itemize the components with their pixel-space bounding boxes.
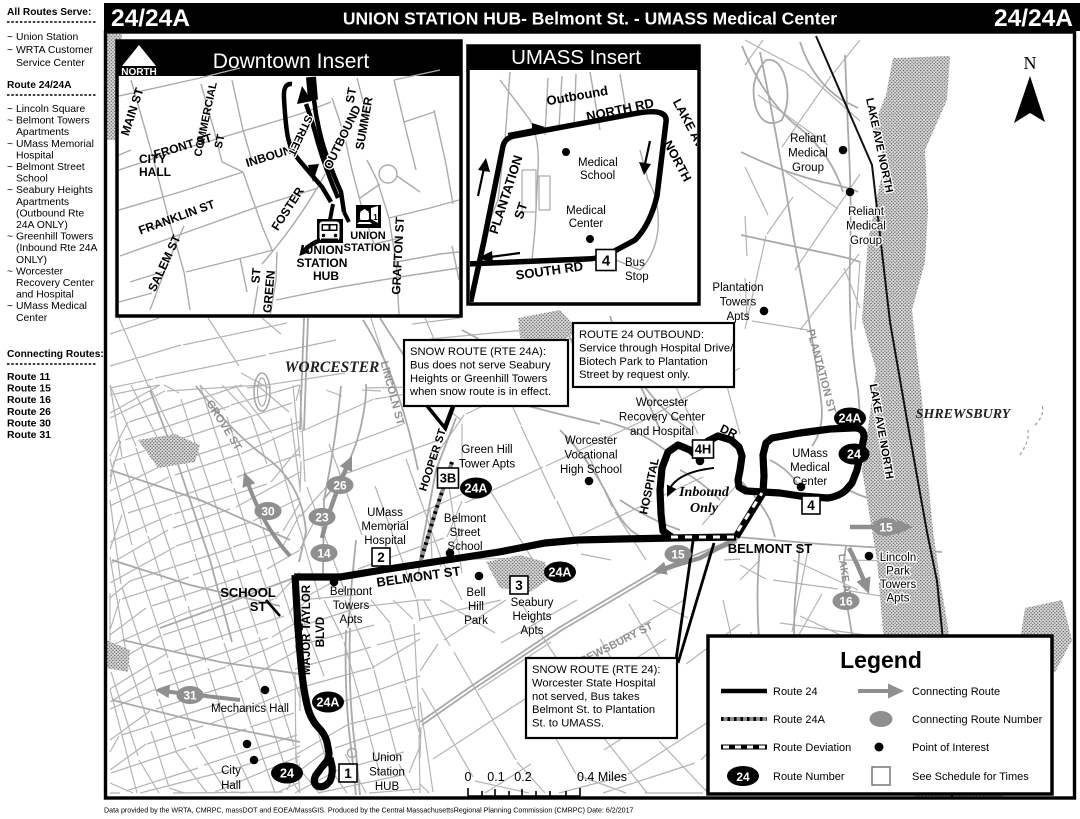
svg-text:0.1: 0.1 bbox=[487, 770, 504, 784]
svg-text:HUB: HUB bbox=[375, 781, 400, 793]
svg-text:Point of Interest: Point of Interest bbox=[912, 742, 989, 754]
svg-text:Hospital: Hospital bbox=[16, 150, 54, 161]
svg-text:School: School bbox=[580, 170, 615, 182]
svg-text:and Hospital: and Hospital bbox=[16, 290, 74, 301]
svg-text:Medical: Medical bbox=[578, 157, 618, 169]
svg-text:Route Number: Route Number bbox=[773, 771, 845, 783]
svg-text:Station: Station bbox=[369, 767, 405, 779]
svg-text:Tower Apts: Tower Apts bbox=[459, 459, 515, 471]
svg-text:STATION: STATION bbox=[344, 242, 391, 254]
svg-text:24A: 24A bbox=[839, 412, 862, 426]
svg-text:~ Belmont Towers: ~ Belmont Towers bbox=[7, 116, 90, 127]
svg-text:SNOW ROUTE (RTE 24):: SNOW ROUTE (RTE 24): bbox=[532, 664, 660, 676]
svg-text:UMASS Insert: UMASS Insert bbox=[511, 46, 641, 69]
svg-text:not served, Bus takes: not served, Bus takes bbox=[532, 691, 640, 703]
svg-text:1: 1 bbox=[344, 766, 352, 781]
svg-text:Route 15: Route 15 bbox=[7, 384, 51, 395]
svg-text:All Routes Serve:: All Routes Serve: bbox=[7, 7, 91, 18]
svg-text:Biotech Park to Plantation: Biotech Park to Plantation bbox=[579, 356, 708, 368]
svg-text:Apts: Apts bbox=[886, 593, 909, 605]
svg-text:Union: Union bbox=[372, 752, 402, 764]
svg-text:23: 23 bbox=[315, 510, 329, 524]
svg-text:Recovery Center: Recovery Center bbox=[16, 278, 95, 289]
svg-text:UNION STATION HUB- Belmont St.: UNION STATION HUB- Belmont St. - UMASS M… bbox=[343, 9, 837, 29]
svg-text:ST: ST bbox=[248, 267, 263, 284]
svg-text:Group: Group bbox=[792, 162, 824, 174]
svg-text:Medical: Medical bbox=[846, 221, 886, 233]
svg-text:~ Worcester: ~ Worcester bbox=[7, 266, 64, 277]
svg-text:HUB: HUB bbox=[313, 269, 339, 283]
svg-text:NORTH: NORTH bbox=[121, 67, 157, 78]
svg-text:~ Greenhill Towers: ~ Greenhill Towers bbox=[7, 232, 93, 243]
svg-text:3B: 3B bbox=[440, 471, 457, 486]
svg-text:WORCESTER: WORCESTER bbox=[285, 359, 380, 376]
svg-text:Worcester State Hospital: Worcester State Hospital bbox=[532, 677, 656, 689]
svg-text:Apts: Apts bbox=[726, 311, 749, 323]
svg-text:Street: Street bbox=[450, 527, 481, 539]
svg-text:HALL: HALL bbox=[139, 165, 171, 179]
svg-text:~ WRTA Customer: ~ WRTA Customer bbox=[7, 45, 93, 56]
svg-text:Route 26: Route 26 bbox=[7, 407, 51, 418]
svg-text:when snow route is in effect.: when snow route is in effect. bbox=[409, 386, 551, 398]
svg-text:ST: ST bbox=[343, 86, 360, 104]
svg-text:Towers: Towers bbox=[880, 579, 917, 591]
svg-text:Center: Center bbox=[569, 218, 604, 230]
svg-text:UMass: UMass bbox=[792, 448, 828, 460]
svg-text:Route 16: Route 16 bbox=[7, 395, 51, 406]
svg-text:Bus does not serve Seabury: Bus does not serve Seabury bbox=[410, 359, 551, 371]
svg-text:Belmont: Belmont bbox=[444, 513, 487, 525]
svg-text:ST: ST bbox=[250, 599, 267, 614]
svg-text:UMass: UMass bbox=[367, 507, 403, 519]
svg-text:24: 24 bbox=[847, 448, 861, 462]
svg-text:ROUTE 24 OUTBOUND:: ROUTE 24 OUTBOUND: bbox=[579, 329, 704, 341]
svg-text:Medical: Medical bbox=[790, 462, 830, 474]
svg-text:24A: 24A bbox=[549, 566, 572, 580]
svg-text:High School: High School bbox=[560, 464, 622, 476]
svg-text:SHREWSBURY: SHREWSBURY bbox=[916, 407, 1012, 422]
svg-text:Connecting Routes:: Connecting Routes: bbox=[7, 349, 104, 360]
svg-text:UNION: UNION bbox=[305, 243, 344, 257]
svg-text:Heights: Heights bbox=[513, 611, 552, 623]
svg-text:School: School bbox=[16, 174, 48, 185]
svg-text:Medical: Medical bbox=[566, 205, 606, 217]
svg-text:(Inbound Rte 24A: (Inbound Rte 24A bbox=[16, 243, 98, 254]
svg-text:24: 24 bbox=[736, 770, 750, 784]
svg-text:City: City bbox=[221, 765, 241, 777]
svg-text:Stop: Stop bbox=[625, 271, 649, 283]
svg-text:St. to UMASS.: St. to UMASS. bbox=[532, 718, 604, 730]
svg-text:Vocational: Vocational bbox=[564, 450, 617, 462]
svg-text:Hall: Hall bbox=[221, 780, 241, 792]
svg-text:Memorial: Memorial bbox=[361, 521, 408, 533]
svg-text:16: 16 bbox=[839, 594, 853, 608]
svg-text:Connecting Route Number: Connecting Route Number bbox=[912, 714, 1043, 726]
svg-text:MAJOR TAYLOR: MAJOR TAYLOR bbox=[301, 584, 313, 675]
svg-text:STATION: STATION bbox=[297, 256, 348, 270]
svg-text:Green Hill: Green Hill bbox=[461, 444, 512, 456]
svg-text:4: 4 bbox=[807, 498, 815, 513]
svg-text:SNOW ROUTE (RTE 24A):: SNOW ROUTE (RTE 24A): bbox=[410, 346, 546, 358]
svg-text:(Outbound Rte: (Outbound Rte bbox=[16, 208, 84, 219]
svg-text:Park: Park bbox=[464, 615, 488, 627]
svg-text:4H: 4H bbox=[695, 442, 712, 457]
svg-text:Park: Park bbox=[886, 566, 910, 578]
svg-text:26: 26 bbox=[333, 478, 347, 492]
svg-text:15: 15 bbox=[671, 547, 685, 561]
svg-text:Apartments: Apartments bbox=[16, 197, 69, 208]
svg-text:1: 1 bbox=[373, 213, 378, 222]
svg-text:~ Union Station: ~ Union Station bbox=[7, 32, 79, 43]
svg-text:UNION: UNION bbox=[350, 230, 386, 242]
svg-text:Towers: Towers bbox=[333, 600, 370, 612]
svg-text:24A: 24A bbox=[465, 482, 488, 496]
svg-text:Seabury: Seabury bbox=[511, 597, 554, 609]
svg-text:Route 11: Route 11 bbox=[7, 372, 51, 383]
svg-text:2: 2 bbox=[377, 550, 385, 565]
svg-text:Connecting Route: Connecting Route bbox=[912, 686, 1000, 698]
svg-text:Mechanics Hall: Mechanics Hall bbox=[211, 703, 289, 715]
svg-text:~ UMass Medical: ~ UMass Medical bbox=[7, 301, 87, 312]
svg-text:Only: Only bbox=[690, 501, 719, 516]
svg-text:Route 30: Route 30 bbox=[7, 418, 51, 429]
svg-text:31: 31 bbox=[183, 688, 197, 702]
svg-text:Apts: Apts bbox=[520, 625, 543, 637]
svg-text:Belmont: Belmont bbox=[330, 586, 373, 598]
svg-text:Reliant: Reliant bbox=[848, 206, 885, 218]
svg-text:Center: Center bbox=[16, 313, 48, 324]
svg-text:Bell: Bell bbox=[466, 587, 485, 599]
svg-text:14: 14 bbox=[317, 546, 331, 560]
svg-text:Apts: Apts bbox=[339, 614, 362, 626]
svg-text:SCHOOL: SCHOOL bbox=[220, 585, 276, 600]
svg-text:Plantation: Plantation bbox=[712, 282, 763, 294]
svg-text:Route 24A: Route 24A bbox=[773, 714, 826, 726]
svg-text:Lincoln: Lincoln bbox=[880, 552, 916, 564]
svg-text:Heights or Greenhill Towers: Heights or Greenhill Towers bbox=[410, 373, 548, 385]
svg-text:Recovery Center: Recovery Center bbox=[619, 412, 705, 424]
svg-text:4: 4 bbox=[602, 252, 611, 269]
svg-text:Worcester: Worcester bbox=[565, 435, 617, 447]
svg-text:Service Center: Service Center bbox=[16, 58, 85, 69]
svg-text:Belmont St. to Plantation: Belmont St. to Plantation bbox=[532, 704, 655, 716]
svg-text:Inbound: Inbound bbox=[678, 485, 730, 500]
svg-text:Towers: Towers bbox=[720, 297, 757, 309]
svg-text:0: 0 bbox=[465, 770, 472, 784]
svg-text:N: N bbox=[1024, 53, 1037, 73]
svg-text:Hospital: Hospital bbox=[364, 535, 406, 547]
svg-text:~ UMass Memorial: ~ UMass Memorial bbox=[7, 139, 94, 150]
svg-text:Route 24/24A: Route 24/24A bbox=[7, 80, 72, 91]
svg-text:ONLY): ONLY) bbox=[16, 255, 47, 266]
svg-text:and Hospital: and Hospital bbox=[630, 426, 694, 438]
svg-text:Apartments: Apartments bbox=[16, 127, 69, 138]
svg-text:24A ONLY): 24A ONLY) bbox=[16, 220, 68, 231]
svg-text:3: 3 bbox=[515, 578, 523, 593]
svg-text:Worcester: Worcester bbox=[636, 397, 688, 409]
svg-text:30: 30 bbox=[261, 504, 275, 518]
svg-text:Medical: Medical bbox=[788, 148, 828, 160]
svg-text:Reliant: Reliant bbox=[790, 133, 827, 145]
svg-text:Street by request only.: Street by request only. bbox=[579, 369, 690, 381]
svg-text:CITY: CITY bbox=[139, 152, 166, 166]
svg-text:15: 15 bbox=[879, 520, 893, 534]
svg-text:Data provided by the WRTA, CMR: Data provided by the WRTA, CMRPC, massDO… bbox=[104, 807, 634, 815]
svg-text:See Schedule for Times: See Schedule for Times bbox=[912, 771, 1029, 783]
svg-text:~ Lincoln Square: ~ Lincoln Square bbox=[7, 104, 85, 115]
svg-text:Group: Group bbox=[850, 235, 882, 247]
svg-text:24: 24 bbox=[280, 767, 294, 781]
svg-text:Hill: Hill bbox=[468, 601, 484, 613]
svg-text:Route 24: Route 24 bbox=[773, 686, 818, 698]
svg-text:24A: 24A bbox=[317, 696, 340, 710]
svg-text:0.4 Miles: 0.4 Miles bbox=[577, 770, 627, 784]
svg-text:Route Deviation: Route Deviation bbox=[773, 742, 851, 754]
svg-text:~ Seabury Heights: ~ Seabury Heights bbox=[7, 185, 93, 196]
svg-text:Service through Hospital Drive: Service through Hospital Drive/ bbox=[579, 342, 734, 354]
svg-text:24/24A: 24/24A bbox=[994, 5, 1073, 32]
svg-text:BLVD: BLVD bbox=[315, 617, 327, 647]
svg-text:Legend: Legend bbox=[840, 647, 922, 673]
svg-text:24/24A: 24/24A bbox=[111, 5, 190, 32]
svg-text:Bus: Bus bbox=[625, 257, 645, 269]
svg-text:Route 31: Route 31 bbox=[7, 430, 51, 441]
svg-text:0.2: 0.2 bbox=[514, 770, 531, 784]
svg-text:~ Belmont Street: ~ Belmont Street bbox=[7, 162, 85, 173]
svg-text:BELMONT ST: BELMONT ST bbox=[728, 541, 813, 556]
